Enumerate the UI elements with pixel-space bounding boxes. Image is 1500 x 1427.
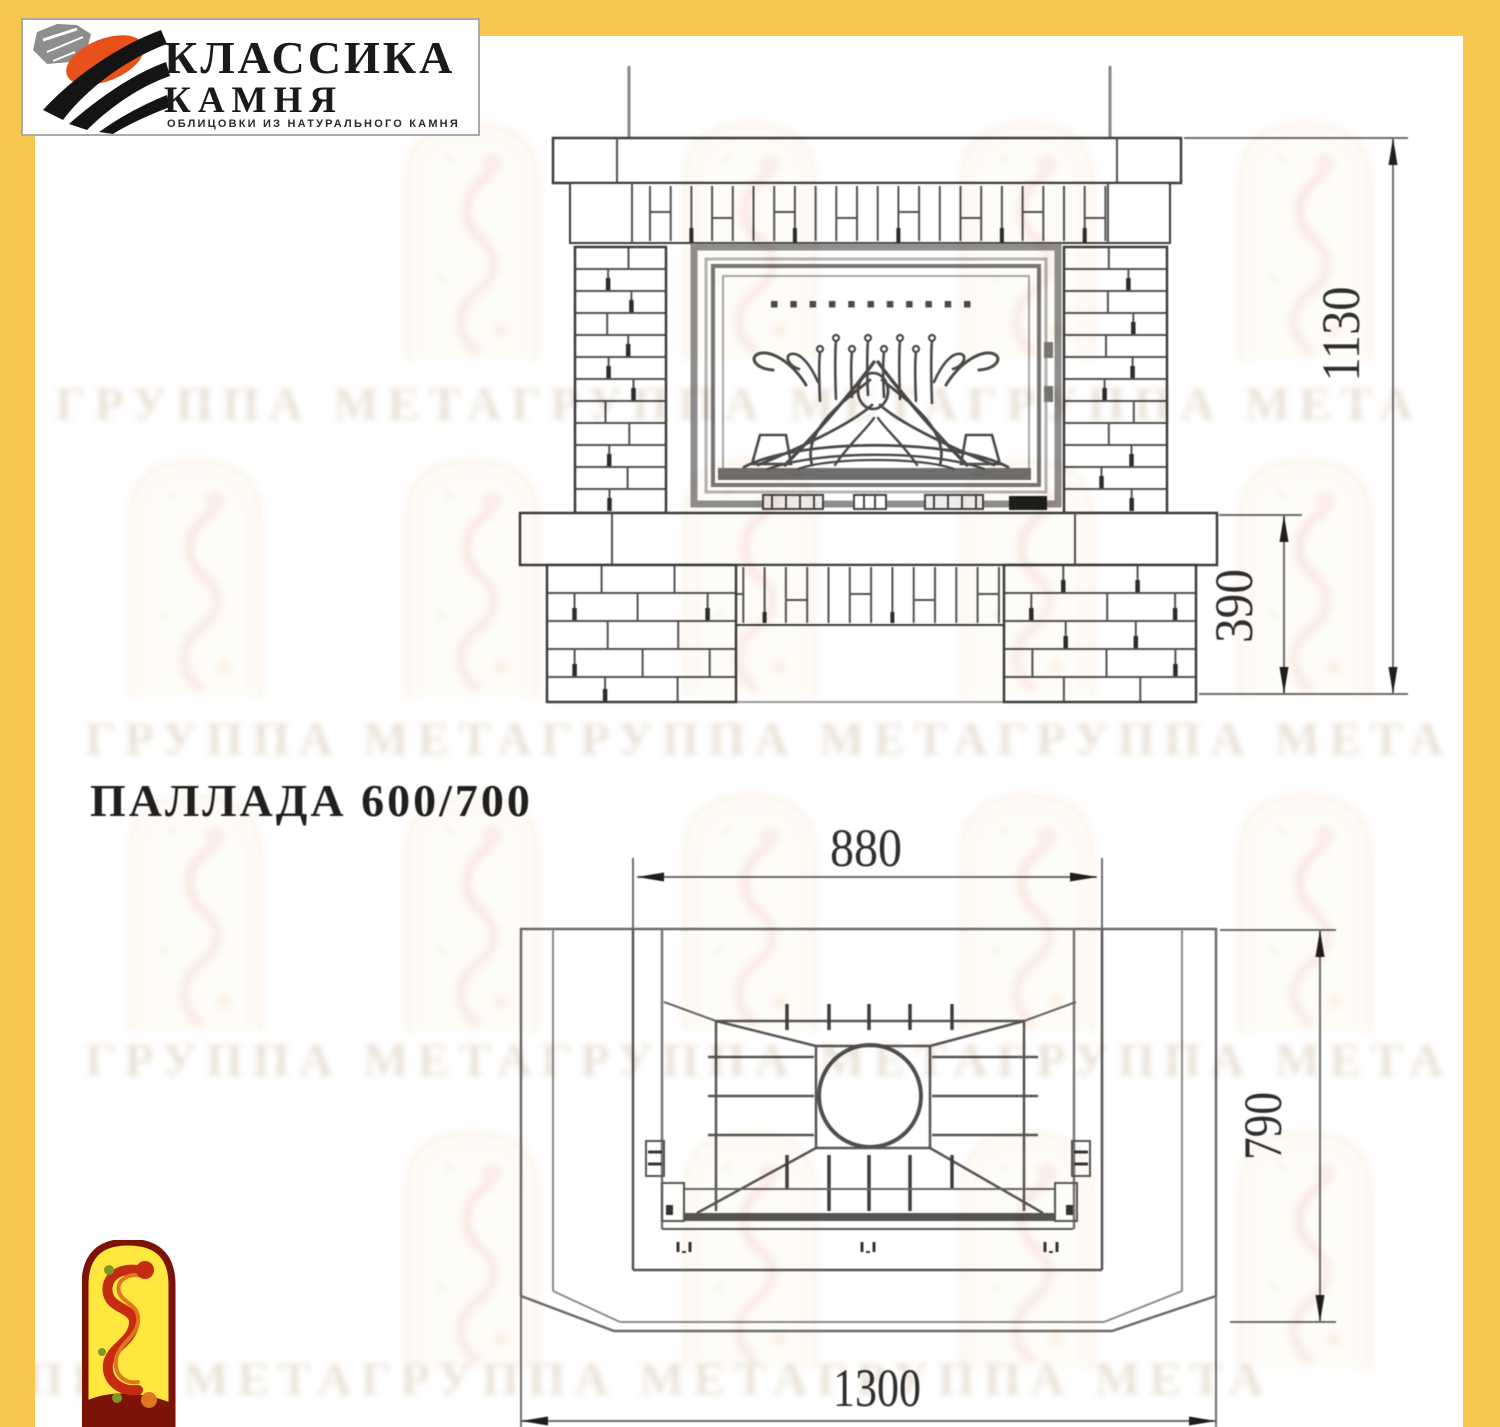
svg-text:ГРУППА МЕТАГРУППА МЕТАГРУППА М: ГРУППА МЕТАГРУППА МЕТАГРУППА МЕТА: [85, 713, 1453, 766]
svg-text:ОБЛИЦОВКИ ИЗ НАТУРАЛЬНОГО КАМН: ОБЛИЦОВКИ ИЗ НАТУРАЛЬНОГО КАМНЯ: [167, 118, 460, 130]
svg-text:ГРУППА МЕТАГРУППА МЕТАГРУППА М: ГРУППА МЕТАГРУППА МЕТАГРУППА МЕТА: [55, 378, 1423, 431]
svg-text:ГРУППА МЕТАГРУППА МЕТАГРУППА М: ГРУППА МЕТАГРУППА МЕТАГРУППА МЕТА: [85, 1034, 1453, 1087]
svg-text:КАМНЯ: КАМНЯ: [164, 80, 343, 121]
svg-text:КЛАССИКА: КЛАССИКА: [164, 32, 455, 83]
svg-text:ГРУППА МЕТАГРУППА МЕТАГРУППА М: ГРУППА МЕТАГРУППА МЕТАГРУППА МЕТА: [0, 1353, 1273, 1406]
